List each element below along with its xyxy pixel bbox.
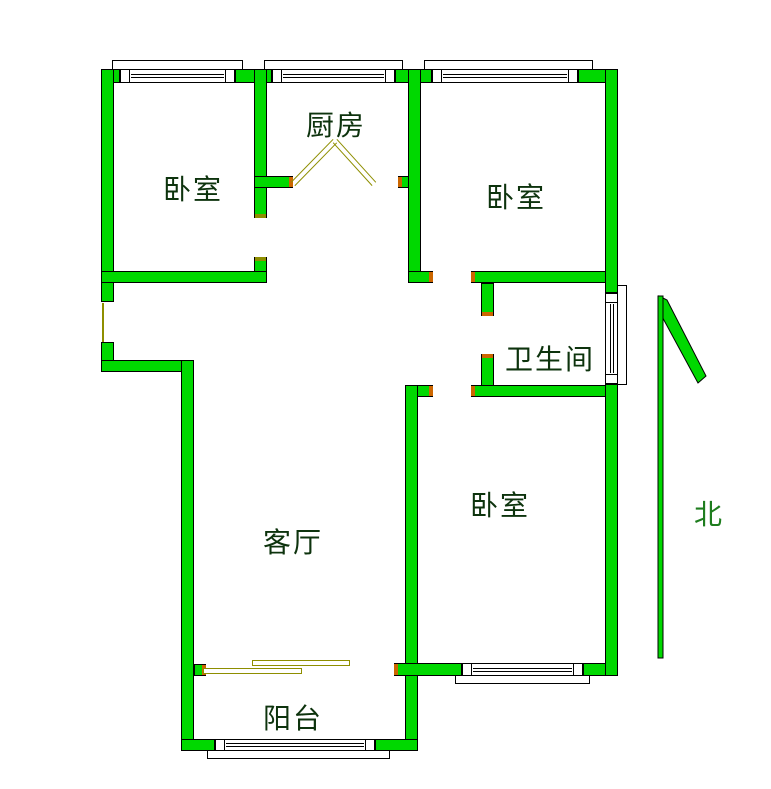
floor-plan: 卧室厨房卧室卫生间客厅卧室阳台北 xyxy=(0,0,771,789)
north-arrow-icon xyxy=(0,0,771,789)
north-label: 北 xyxy=(694,501,722,529)
